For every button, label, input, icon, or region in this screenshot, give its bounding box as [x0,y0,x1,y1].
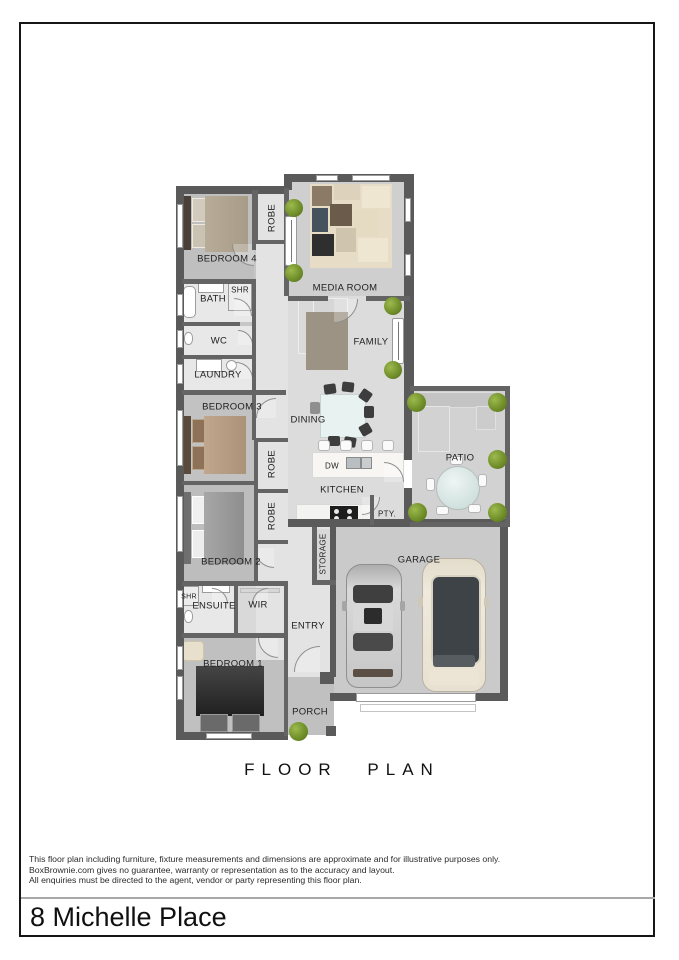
window [352,175,390,181]
dining-table [320,394,366,438]
label-porch: PORCH [292,707,328,718]
dining-chair [364,406,374,418]
bush [285,199,303,217]
kitchen-stool [382,440,394,451]
porch-pillar [320,672,334,684]
label-storage: STORAGE [319,533,328,574]
window [177,646,183,670]
window [405,198,411,222]
outdoor-sofa [418,406,450,452]
wall [182,481,254,485]
wall [182,322,240,326]
label-dw: DW [325,462,339,471]
label-shr: SHR [181,594,197,601]
window [285,216,297,266]
dining-chair [310,402,320,414]
car [422,558,486,692]
armchair [182,641,204,661]
window [177,294,183,316]
wall [330,693,356,701]
kitchen-stool [318,440,330,451]
window [316,175,338,181]
label-bath: BATH [200,294,226,305]
wall [288,296,328,301]
outdoor-chair [426,478,435,491]
wall [284,174,414,182]
car [346,564,402,688]
toilet [184,610,193,623]
floor-plan: BEDROOM 4 ROBE MEDIA ROOM BATH SHR WC LA… [0,0,679,960]
wall [476,693,508,701]
wall [284,581,288,736]
wall [182,279,254,284]
disclaimer: This floor plan including furniture, fix… [29,854,500,886]
bush [384,361,402,379]
kitchen-stool [361,440,373,451]
pantry-wall [370,495,374,525]
label-ensuite: ENSUITE [192,601,235,612]
bed [194,666,266,732]
patio-wall [410,386,510,391]
property-address: 8 Michelle Place [30,902,227,933]
address-divider [21,897,655,899]
disclaimer-line: This floor plan including furniture, fix… [29,854,500,865]
label-bedroom1: BEDROOM 1 [203,659,263,670]
bush [488,503,507,522]
garage-door [356,693,476,702]
wall [252,279,256,390]
bathtub [183,286,196,318]
wall [182,633,284,638]
wall [176,186,288,194]
label-robe: ROBE [267,502,278,530]
bush [289,722,308,741]
wall [182,581,284,586]
label-laundry: LAUNDRY [194,370,241,381]
label-garage: GARAGE [398,555,440,566]
robe-wall [254,240,288,244]
sink [346,457,361,469]
label-pty: PTY. [378,510,396,519]
window [392,318,404,364]
porch-pillar [326,726,336,736]
disclaimer-line: BoxBrownie.com gives no guarantee, warra… [29,865,500,876]
robe-wall [254,190,258,244]
dining-chair [342,381,355,392]
wall [182,390,286,395]
window [177,410,183,466]
label-kitchen: KITCHEN [320,485,364,496]
label-bedroom3: BEDROOM 3 [202,402,262,413]
label-bedroom2: BEDROOM 2 [201,557,261,568]
robe-wall [254,489,288,493]
bush [407,393,426,412]
label-robe: ROBE [267,450,278,478]
bush [285,264,303,282]
wall [182,355,254,359]
label-wc: WC [211,336,227,347]
sink [361,457,372,469]
label-family: FAMILY [354,337,389,348]
kitchen-stool [340,440,352,451]
window [405,254,411,276]
window [177,204,183,248]
label-bedroom4: BEDROOM 4 [197,254,257,265]
robe-wall [254,540,288,544]
window [206,733,252,739]
dining-chair [323,383,336,395]
vanity [198,283,224,293]
bush [408,503,427,522]
window [177,364,183,384]
label-entry: ENTRY [291,621,325,632]
media-sofa [310,184,392,268]
toilet [184,332,193,345]
bush [488,393,507,412]
window [177,676,183,700]
bed [184,414,246,478]
wall [500,519,508,701]
bush [488,450,507,469]
storage-wall [312,580,336,585]
disclaimer-line: All enquiries must be directed to the ag… [29,875,500,886]
robe-wall [254,438,288,442]
floor-plan-page: BEDROOM 4 ROBE MEDIA ROOM BATH SHR WC LA… [0,0,679,960]
patio-wall [410,522,508,527]
label-patio: PATIO [446,453,475,464]
outdoor-chair [478,474,487,487]
window [177,496,183,552]
label-media-room: MEDIA ROOM [313,283,378,294]
label-shr: SHR [231,286,249,295]
label-wir: WIR [248,600,267,611]
outdoor-chair [436,506,449,515]
bush [384,297,402,315]
outdoor-chair [468,504,481,513]
label-dining: DINING [290,415,325,426]
window [177,330,183,348]
label-robe: ROBE [267,204,278,232]
wall [330,527,336,677]
storage-wall [312,527,317,583]
floor-plan-title: FLOOR PLAN [172,760,512,780]
driveway-line [360,704,476,712]
